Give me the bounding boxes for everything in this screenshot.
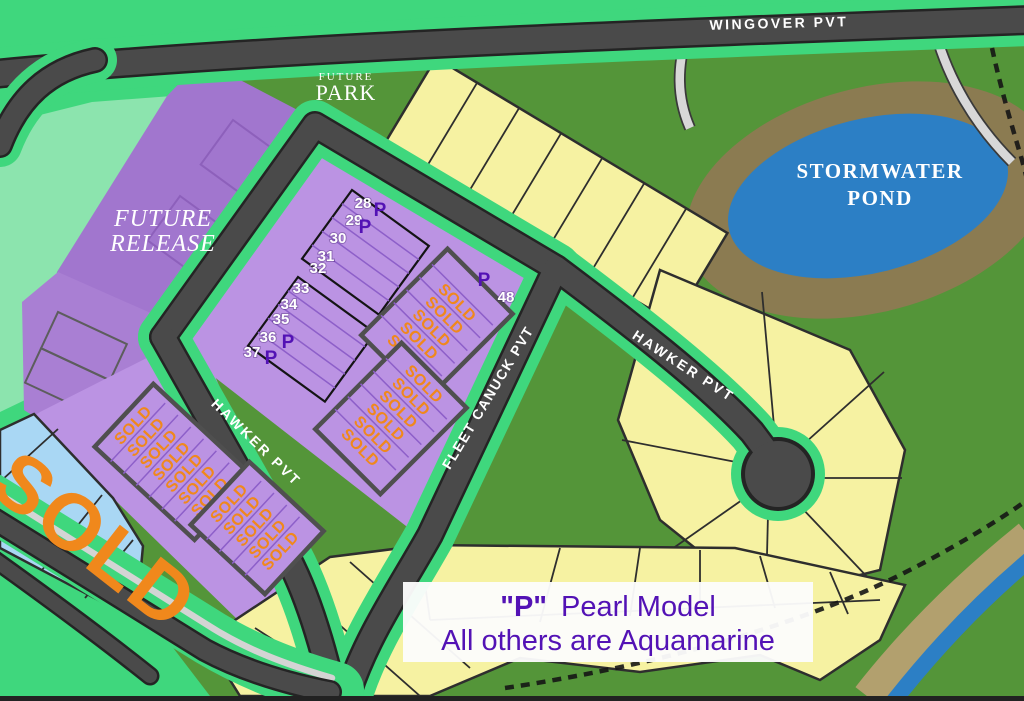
site-plan-map: SOLDSOLDSOLDSOLDSOLDSOLDSOLDSOLDSOLDSOLD… [0,0,1024,696]
lot-number-30: 30 [330,230,347,247]
lot-number-37: 37 [244,344,261,361]
lot-number-33: 33 [293,280,310,297]
lot-number-36: 36 [260,329,277,346]
stormwater-pond-label-line1: STORMWATER [796,159,963,183]
pearl-marker-lot-37: P [265,348,278,369]
pearl-marker-lot-36: P [282,332,295,353]
legend-line2: All others are Aquamarine [441,625,775,657]
legend-pearl-symbol: "P" [500,591,547,623]
culdesac-surface [745,441,811,507]
pearl-marker-lot-48: P [478,270,491,291]
lot-number-32: 32 [310,260,327,277]
future-release-label-line1: FUTURE [113,206,212,232]
pearl-marker-lot-28: P [374,200,387,221]
lot-number-35: 35 [273,311,290,328]
site-plan-page: SOLDSOLDSOLDSOLDSOLDSOLDSOLDSOLDSOLDSOLD… [0,0,1024,696]
future-park-label-line2: PARK [316,80,377,105]
lot-number-48: 48 [498,289,515,306]
legend-line1: "P"Pearl Model [500,591,716,623]
future-release-label-line2: RELEASE [109,231,216,257]
legend-box: "P"Pearl Model All others are Aquamarine [403,582,813,662]
lot-number-28: 28 [355,195,372,212]
legend-pearl-model: Pearl Model [561,591,716,623]
pearl-marker-lot-29: P [359,217,372,238]
stormwater-pond-label-line2: POND [847,186,913,210]
